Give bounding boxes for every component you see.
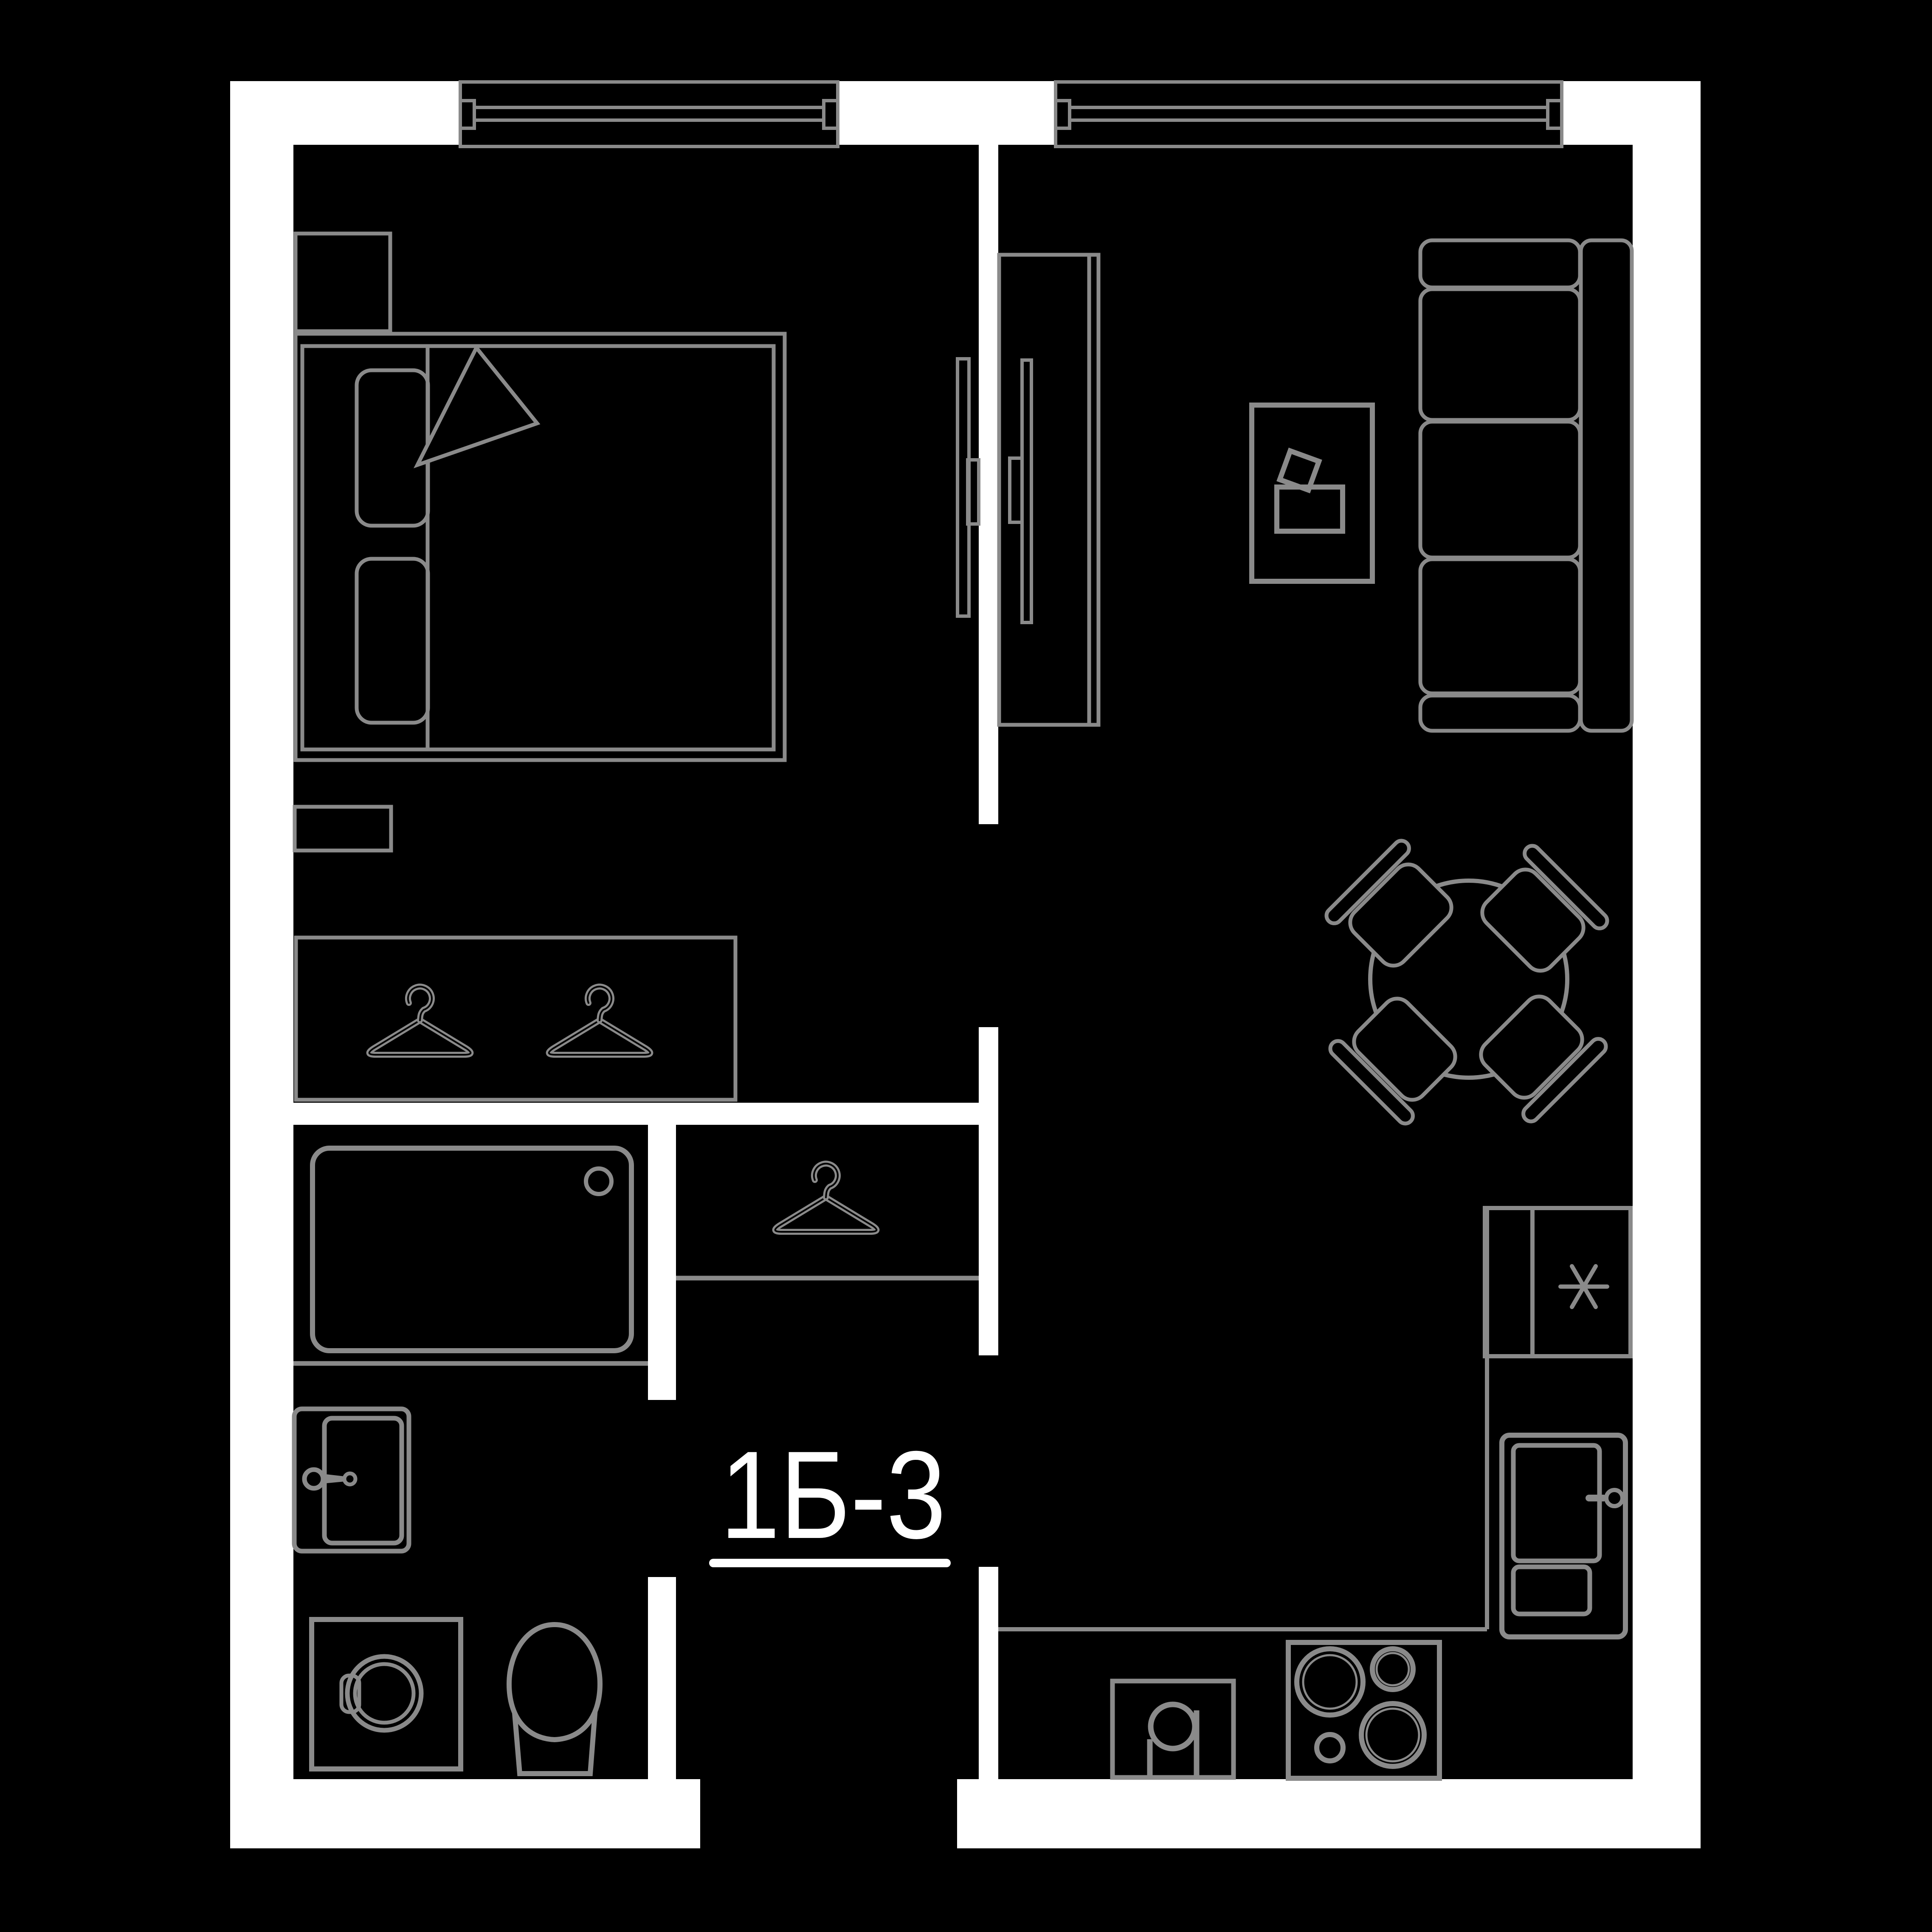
svg-text:1Б-3: 1Б-3 xyxy=(720,1425,946,1565)
